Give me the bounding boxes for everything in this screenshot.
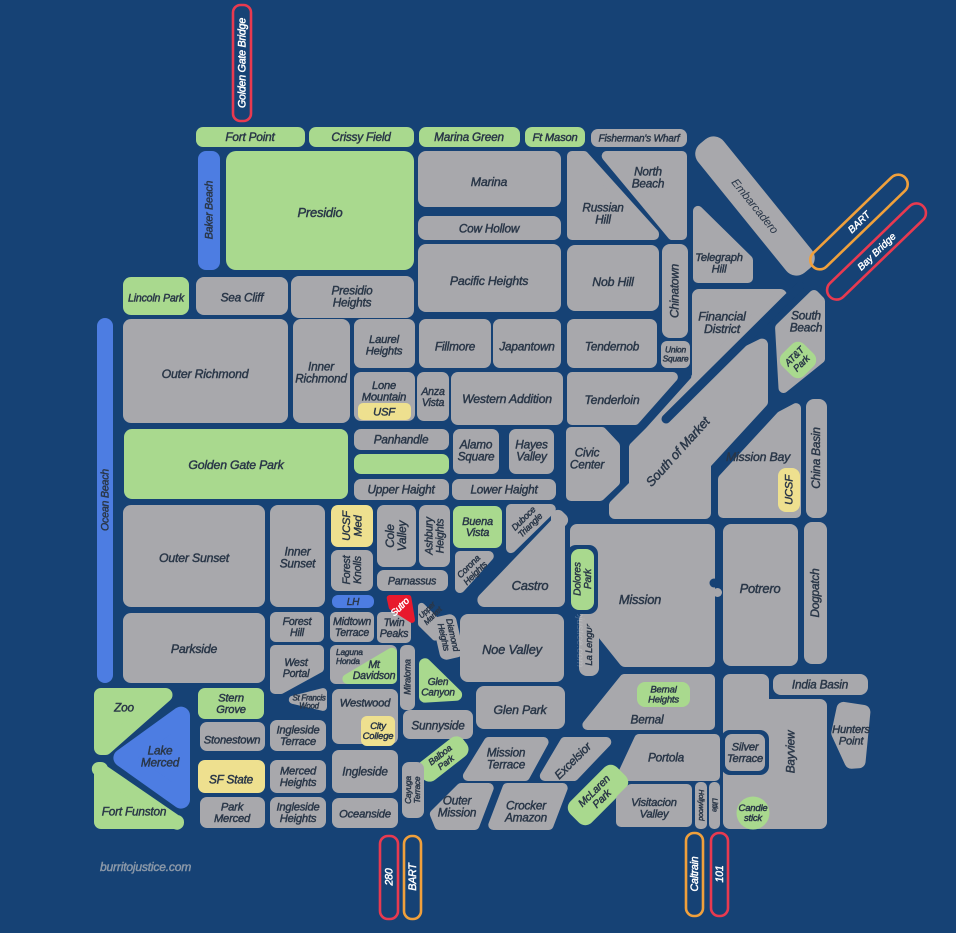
- svg-text:Cow Hollow: Cow Hollow: [459, 222, 521, 236]
- svg-text:Laurel: Laurel: [369, 334, 400, 346]
- svg-text:Nob Hill: Nob Hill: [592, 275, 635, 289]
- svg-text:Telegraph: Telegraph: [695, 252, 743, 264]
- svg-text:Point: Point: [839, 735, 865, 747]
- svg-text:Merced: Merced: [141, 756, 180, 770]
- svg-text:Canyon: Canyon: [421, 687, 455, 698]
- svg-text:LH: LH: [347, 597, 360, 608]
- svg-text:Marina Green: Marina Green: [434, 130, 504, 144]
- svg-text:Little: Little: [710, 798, 718, 812]
- svg-text:Outer Richmond: Outer Richmond: [162, 367, 250, 381]
- svg-text:Ingleside: Ingleside: [277, 724, 320, 736]
- svg-text:Davidson: Davidson: [353, 670, 396, 682]
- svg-text:UCSF: UCSF: [341, 510, 353, 541]
- svg-text:Richmond: Richmond: [295, 372, 347, 386]
- svg-text:Park: Park: [221, 801, 245, 813]
- svg-text:Med: Med: [352, 514, 364, 536]
- svg-text:Golden Gate Bridge: Golden Gate Bridge: [236, 18, 248, 108]
- svg-text:Terrace: Terrace: [280, 736, 316, 748]
- svg-text:Ingleside: Ingleside: [342, 765, 388, 779]
- svg-text:Tendernob: Tendernob: [585, 340, 640, 354]
- svg-text:Vista: Vista: [466, 527, 489, 539]
- svg-text:Honda: Honda: [336, 656, 360, 666]
- svg-text:SF State: SF State: [209, 773, 254, 787]
- svg-text:Merced: Merced: [214, 813, 251, 825]
- svg-text:Oceanside: Oceanside: [339, 809, 391, 821]
- svg-text:Heights: Heights: [280, 777, 317, 789]
- svg-text:Terrace: Terrace: [412, 776, 422, 803]
- svg-text:Heights: Heights: [333, 296, 372, 310]
- svg-text:Hunters: Hunters: [832, 724, 870, 736]
- svg-text:Heights: Heights: [434, 518, 446, 553]
- svg-text:Parkside: Parkside: [171, 642, 218, 656]
- svg-text:Ft Mason: Ft Mason: [532, 132, 577, 144]
- svg-text:Caltrain: Caltrain: [689, 856, 701, 891]
- svg-text:Valley: Valley: [640, 808, 670, 820]
- svg-text:stick: stick: [744, 813, 763, 824]
- svg-text:Glen Park: Glen Park: [494, 703, 548, 717]
- svg-text:Marina: Marina: [471, 175, 508, 189]
- svg-text:Mountain: Mountain: [362, 391, 406, 403]
- svg-text:Square: Square: [458, 450, 495, 464]
- svg-text:Fort Point: Fort Point: [225, 130, 275, 144]
- svg-text:Japantown: Japantown: [498, 340, 555, 354]
- svg-text:Vista: Vista: [422, 397, 445, 409]
- svg-text:BART: BART: [407, 862, 419, 891]
- svg-text:India Basin: India Basin: [792, 678, 849, 692]
- svg-text:Stonestown: Stonestown: [204, 735, 260, 747]
- svg-text:Parnassus: Parnassus: [388, 575, 437, 587]
- svg-text:Heights: Heights: [280, 813, 317, 825]
- svg-text:Terrace: Terrace: [335, 627, 369, 639]
- svg-text:Dogpatch: Dogpatch: [808, 568, 822, 618]
- svg-text:Lower Haight: Lower Haight: [470, 483, 538, 497]
- svg-text:Noe Valley: Noe Valley: [482, 642, 544, 657]
- svg-text:Peaks: Peaks: [380, 628, 409, 640]
- svg-text:Fort Funston: Fort Funston: [102, 805, 167, 819]
- svg-text:Hill: Hill: [712, 263, 727, 275]
- svg-text:Bayview: Bayview: [784, 729, 798, 773]
- svg-text:Lincoln Park: Lincoln Park: [128, 292, 185, 304]
- svg-text:Lone: Lone: [372, 380, 396, 392]
- svg-text:Center: Center: [570, 458, 605, 472]
- svg-text:Crissy Field: Crissy Field: [331, 130, 391, 144]
- svg-text:Valley: Valley: [516, 450, 548, 464]
- svg-text:280: 280: [383, 868, 395, 886]
- svg-text:Glen: Glen: [428, 677, 449, 688]
- svg-text:Beach: Beach: [790, 321, 823, 335]
- svg-text:Heights: Heights: [366, 345, 403, 357]
- svg-text:Wood: Wood: [299, 701, 319, 710]
- svg-text:District: District: [704, 322, 741, 336]
- svg-text:Stern: Stern: [218, 692, 244, 704]
- svg-text:Upper Haight: Upper Haight: [367, 483, 435, 497]
- svg-text:Sunnyside: Sunnyside: [411, 719, 465, 733]
- svg-text:Westwood: Westwood: [340, 698, 391, 710]
- svg-text:Chinatown: Chinatown: [668, 263, 682, 318]
- svg-text:Potrero: Potrero: [740, 581, 781, 596]
- svg-text:Golden Gate Park: Golden Gate Park: [188, 458, 284, 472]
- svg-text:Hill: Hill: [595, 213, 611, 227]
- svg-text:Merced: Merced: [280, 765, 317, 777]
- svg-text:Visitacion: Visitacion: [631, 797, 677, 809]
- svg-text:USF: USF: [373, 407, 396, 419]
- svg-text:Ocean Beach: Ocean Beach: [99, 469, 111, 531]
- svg-text:China Basin: China Basin: [809, 427, 823, 489]
- svg-text:Tenderloin: Tenderloin: [585, 393, 640, 407]
- svg-text:Grove: Grove: [216, 704, 245, 716]
- svg-text:Beach: Beach: [632, 177, 665, 191]
- svg-text:Portola: Portola: [648, 751, 685, 765]
- svg-text:Portal: Portal: [283, 668, 310, 680]
- svg-text:Presidio: Presidio: [298, 205, 343, 220]
- svg-text:Zoo: Zoo: [113, 701, 134, 715]
- svg-text:UCSF: UCSF: [784, 474, 796, 505]
- svg-text:Ingleside: Ingleside: [277, 801, 320, 813]
- svg-text:Bernal: Bernal: [631, 713, 664, 727]
- svg-text:Outer Sunset: Outer Sunset: [159, 551, 230, 565]
- svg-text:Castro: Castro: [512, 578, 549, 593]
- svg-text:Terrace: Terrace: [727, 753, 763, 765]
- svg-text:Sunset: Sunset: [280, 557, 316, 571]
- svg-text:Pacific Heights: Pacific Heights: [450, 274, 528, 288]
- svg-text:Mission: Mission: [619, 592, 661, 607]
- svg-text:Mission Bay: Mission Bay: [726, 450, 791, 464]
- svg-text:Terrace: Terrace: [487, 758, 526, 772]
- svg-text:Western Addition: Western Addition: [462, 392, 552, 406]
- svg-text:Knolls: Knolls: [352, 555, 364, 584]
- svg-text:Amazon: Amazon: [504, 811, 548, 825]
- svg-text:Miraloma: Miraloma: [402, 659, 412, 695]
- svg-text:Park: Park: [583, 568, 594, 589]
- svg-text:Panhandle: Panhandle: [374, 433, 429, 447]
- svg-text:Fisherman's Wharf: Fisherman's Wharf: [599, 134, 681, 145]
- svg-text:Sea Cliff: Sea Cliff: [221, 291, 266, 305]
- svg-text:Silver: Silver: [732, 741, 760, 753]
- svg-text:Fillmore: Fillmore: [435, 340, 476, 354]
- svg-text:Heights: Heights: [648, 694, 679, 705]
- svg-text:Baker Beach: Baker Beach: [203, 180, 215, 239]
- svg-text:College: College: [363, 731, 394, 742]
- svg-text:Buena: Buena: [462, 516, 493, 528]
- svg-text:Square: Square: [663, 354, 689, 364]
- svg-text:burritojustice.com: burritojustice.com: [100, 860, 191, 874]
- svg-text:Hollywood: Hollywood: [697, 790, 705, 822]
- svg-text:Valley: Valley: [395, 519, 409, 551]
- svg-text:101: 101: [714, 865, 726, 882]
- svg-text:Dolores: Dolores: [572, 562, 583, 596]
- svg-text:Hill: Hill: [290, 627, 305, 639]
- svg-text:Mission: Mission: [438, 806, 477, 820]
